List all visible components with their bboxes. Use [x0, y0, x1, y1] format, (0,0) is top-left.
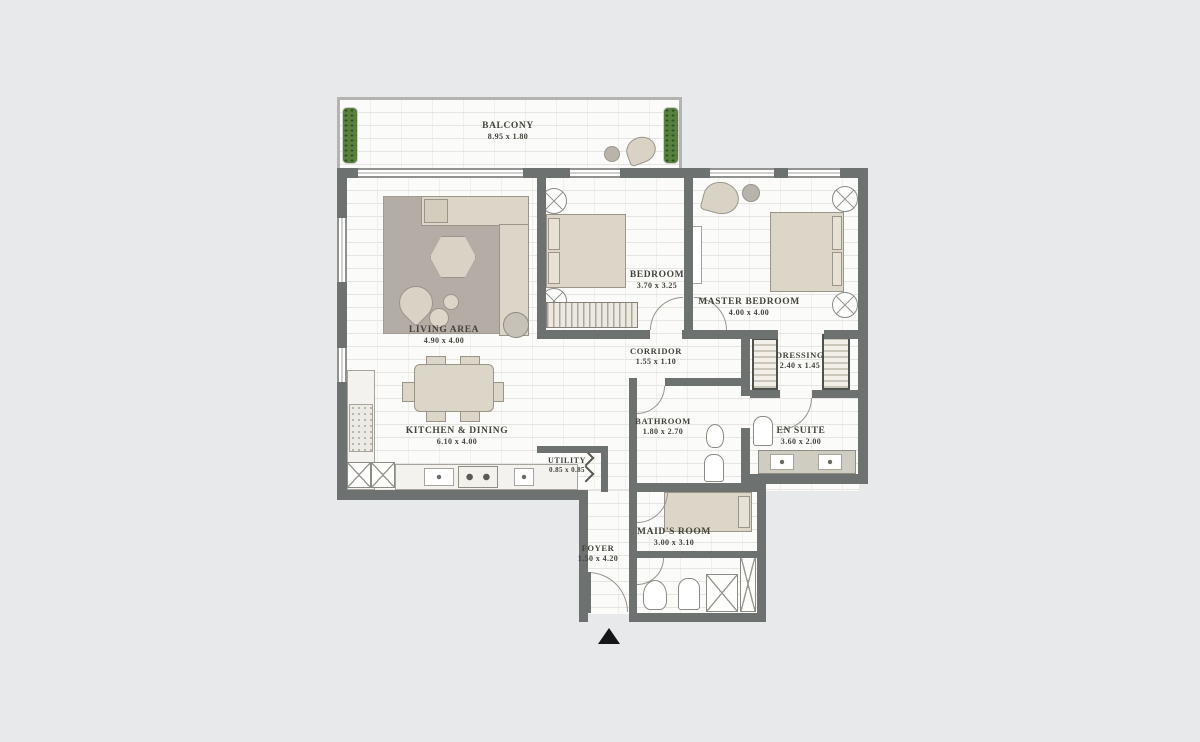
wall [629, 613, 766, 622]
room-label-dressing: DRESSING 2.40 x 1.45 [776, 350, 824, 370]
entrance-marker-icon [598, 628, 620, 644]
wardrobe [740, 556, 756, 612]
wall [629, 490, 637, 622]
window [788, 168, 840, 178]
wall [337, 97, 682, 100]
kitchen-sink [424, 468, 454, 486]
window [710, 168, 774, 178]
window [358, 168, 523, 178]
wall [824, 330, 858, 339]
toilet [678, 578, 700, 610]
room-label-balcony: BALCONY 8.95 x 1.80 [482, 121, 534, 141]
wall [337, 97, 340, 172]
side-table [443, 294, 459, 310]
stove [458, 466, 498, 488]
wall [741, 330, 750, 396]
room-label-bedroom: BEDROOM 3.70 x 3.25 [630, 270, 684, 290]
room-label-foyer: FOYER 1.50 x 4.20 [578, 543, 618, 563]
wall [637, 551, 757, 558]
toilet [753, 416, 773, 446]
window [337, 348, 347, 382]
sofa-cushion [424, 199, 448, 223]
room-label-en-suite: EN SUITE 3.60 x 2.00 [777, 426, 826, 446]
wall [750, 390, 780, 398]
kitchen-sink [514, 468, 534, 486]
balcony-table [604, 146, 620, 162]
wall [537, 446, 608, 453]
pillow [832, 216, 842, 250]
wardrobe [752, 338, 778, 390]
basin [770, 454, 794, 470]
wardrobe [822, 334, 850, 390]
kitchen-cabinet [347, 462, 371, 488]
pillow [832, 252, 842, 286]
wall [601, 446, 608, 492]
toilet [704, 454, 724, 482]
nightstand-lamp [832, 292, 858, 318]
floor-lamp [503, 312, 529, 338]
wall [537, 330, 650, 339]
entrance-door-leaf [588, 572, 591, 613]
side-table [742, 184, 760, 202]
pillow [738, 496, 750, 528]
dresser [546, 302, 638, 328]
wall [629, 483, 765, 492]
plant-icon [342, 107, 358, 164]
room-label-kitchen-dining: KITCHEN & DINING 6.10 x 4.00 [406, 426, 509, 446]
wall [812, 390, 858, 398]
window [570, 168, 620, 178]
room-label-living: LIVING AREA 4.90 x 4.00 [409, 325, 479, 345]
wall [684, 168, 693, 330]
wall [757, 483, 766, 622]
basin [706, 424, 724, 448]
room-label-maids-room: MAID'S ROOM 3.00 x 3.10 [637, 527, 711, 547]
kitchen-cabinet [371, 462, 395, 488]
basin [643, 580, 667, 610]
dining-table [414, 364, 494, 412]
room-label-corridor: CORRIDOR 1.55 x 1.10 [630, 346, 682, 366]
wall [337, 490, 588, 500]
plant-icon [663, 107, 679, 164]
fridge [349, 404, 373, 452]
wall [692, 330, 778, 339]
pillow [548, 218, 560, 250]
wall [679, 97, 682, 172]
room-label-master-bedroom: MASTER BEDROOM 4.00 x 4.00 [698, 297, 800, 317]
room-label-bathroom: BATHROOM 1.80 x 2.70 [635, 416, 691, 436]
wall [741, 428, 750, 483]
basin [818, 454, 842, 470]
nightstand-lamp [832, 186, 858, 212]
room-label-utility: UTILITY 0.85 x 0.85 [548, 456, 586, 474]
floor-plan-canvas: BALCONY 8.95 x 1.80 LIVING AREA 4.90 x 4… [0, 0, 1200, 742]
wall [537, 168, 546, 338]
shower [706, 574, 738, 612]
wall [858, 168, 868, 480]
wall [665, 378, 741, 386]
wall [682, 330, 692, 339]
pillow [548, 252, 560, 284]
window [337, 218, 347, 282]
